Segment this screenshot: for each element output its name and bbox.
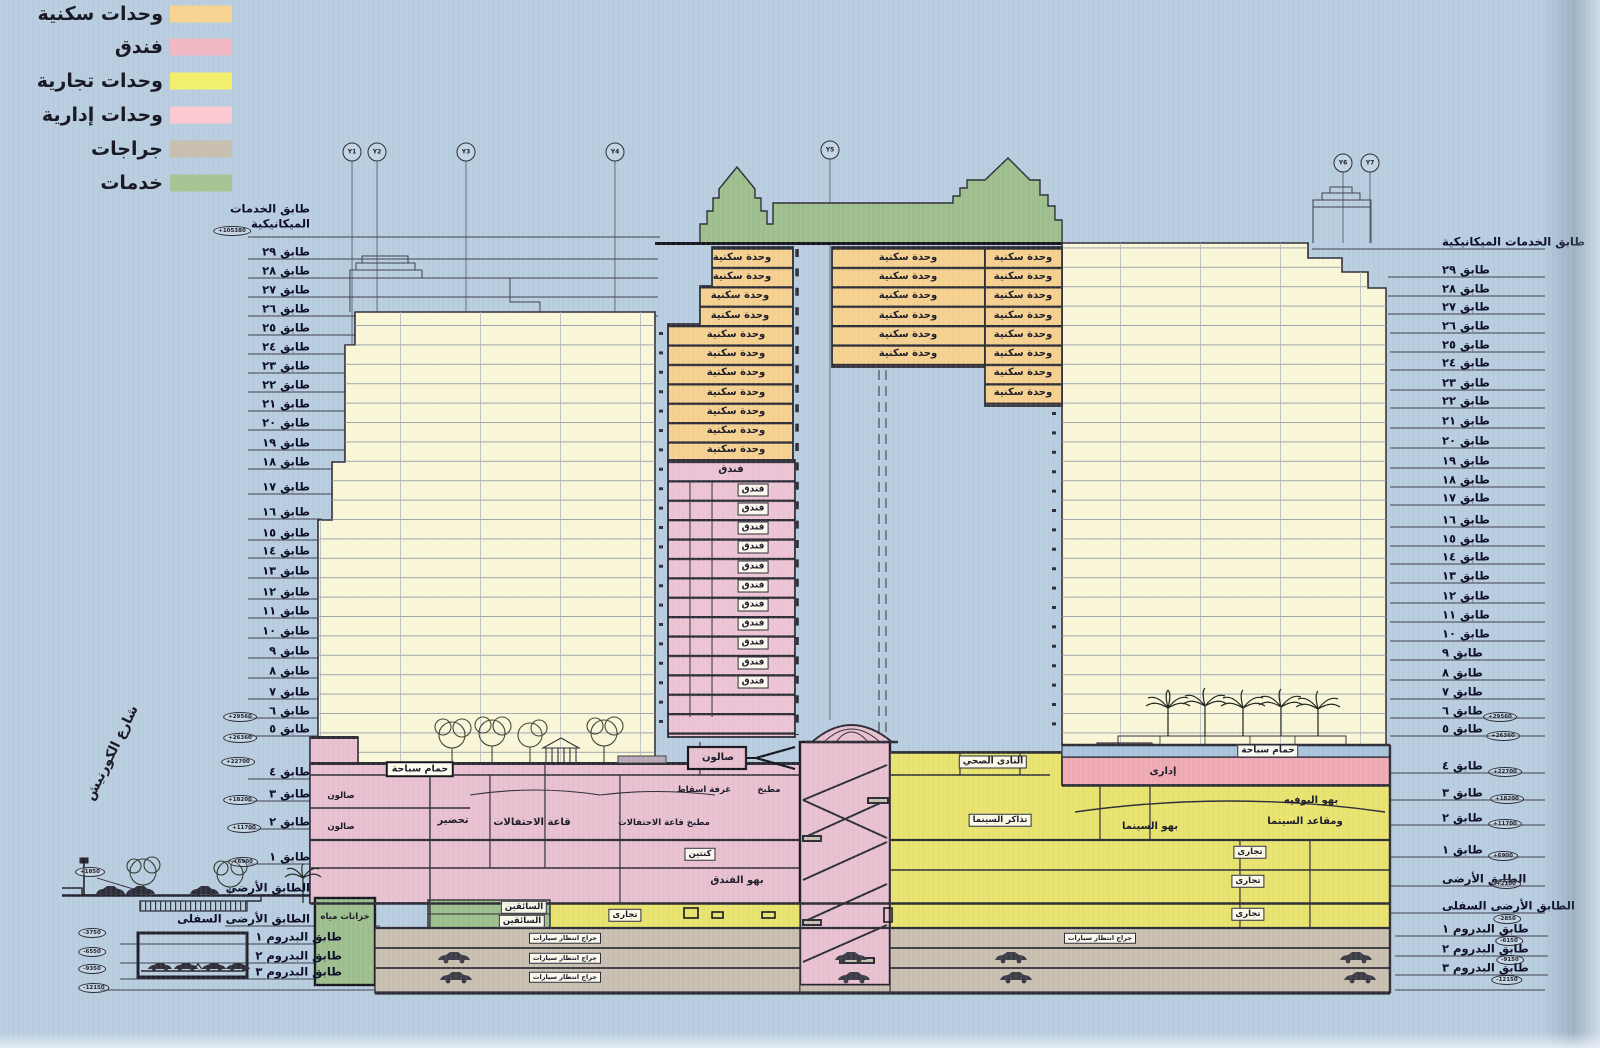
elevation-right-ground: +2100 (1491, 879, 1521, 889)
legend-label-commercial: وحدات تجارية (37, 70, 163, 92)
floor-label-right-22: طابق ٢٢ (1442, 395, 1490, 407)
floor-label-right-lower-ground: الطابق الأرضى السفلى (1442, 900, 1575, 912)
room-label-hotel: فندق (738, 484, 769, 497)
floor-label-left-2: طابق ٢ (269, 816, 310, 828)
room-label-residential: وحدة سكنية (879, 253, 937, 263)
floor-label-right-10: طابق ١٠ (1442, 628, 1490, 640)
legend-swatch-hotel (170, 39, 232, 56)
legend-swatch-residential (170, 6, 232, 23)
room-label-hotel: فندق (738, 657, 769, 670)
grid-marker-y1: Y1 (343, 143, 362, 162)
room-label-residential: وحدة سكنية (711, 311, 769, 321)
services-crown (700, 158, 1062, 243)
room-label-residential: وحدة سكنية (994, 388, 1052, 398)
room-label-commercial: تجارى (608, 909, 641, 922)
grid-marker-y4: Y4 (606, 143, 625, 162)
elevation-right-f4: +22700 (1488, 767, 1522, 777)
floor-label-left-23: طابق ٢٣ (262, 360, 310, 372)
floor-label-right-20: طابق ٢٠ (1442, 435, 1490, 447)
floor-label-left-14: طابق ١٤ (262, 545, 310, 557)
floor-label-left-b2: طابق البدروم ٢ (255, 950, 342, 962)
room-label-residential: وحدة سكنية (707, 445, 765, 455)
floor-label-right-2: طابق ٢ (1442, 812, 1483, 824)
room-label-ballroom-kitchen: مطبخ قاعة الاحتفالات (618, 819, 710, 828)
floor-label-right-12: طابق ١٢ (1442, 590, 1490, 602)
room-label-ballroom: قاعة الاحتفالات (493, 818, 570, 828)
elevation-right-f2: +11700 (1488, 819, 1522, 829)
room-label-parking: جراج انتظار سيارات (529, 933, 601, 944)
floor-label-left-6: طابق ٦ (269, 705, 310, 717)
room-label-hotel-lobby: بهو الفندق (710, 876, 763, 886)
room-label-residential: وحدة سكنية (707, 426, 765, 436)
room-label-residential: وحدة سكنية (994, 311, 1052, 321)
grid-marker-y4-label: Y4 (611, 149, 620, 156)
room-label-residential: وحدة سكنية (707, 349, 765, 359)
grid-marker-y7: Y7 (1361, 154, 1380, 173)
elevation-right-b1: -6150 (1495, 936, 1523, 946)
architectural-section-drawing: وحدات سكنية فندق وحدات تجارية وحدات إدار… (0, 0, 1600, 1048)
room-label-residential: وحدة سكنية (994, 291, 1052, 301)
floor-label-right-14: طابق ١٤ (1442, 551, 1490, 563)
room-label-hotel: فندق (718, 465, 743, 475)
floor-label-right-27: طابق ٢٧ (1442, 301, 1490, 313)
elevation-left-f1: +6900 (228, 857, 258, 867)
grid-marker-y2: Y2 (368, 143, 387, 162)
grid-marker-y1-label: Y1 (348, 149, 357, 156)
room-label-canteen: كنتين (684, 848, 715, 861)
floor-label-left-28: طابق ٢٨ (262, 265, 310, 277)
elevation-right-lower: -2850 (1493, 914, 1521, 924)
floor-label-left-b3: طابق البدروم ٣ (255, 966, 342, 978)
floor-label-right-28: طابق ٢٨ (1442, 283, 1490, 295)
atrium-strip (800, 742, 890, 985)
legend-swatch-commercial (170, 73, 232, 90)
room-label-salon: صالون (327, 823, 354, 832)
room-label-hotel: فندق (738, 503, 769, 516)
grid-marker-y2-label: Y2 (373, 149, 382, 156)
room-label-residential: وحدة سكنية (713, 253, 771, 263)
room-label-water-tanks: خزانات مياه (320, 913, 369, 922)
floor-label-right-9: طابق ٩ (1442, 647, 1483, 659)
room-label-residential: وحدة سكنية (879, 291, 937, 301)
floor-label-right-mech: طابق الخدمات الميكانيكية (1442, 236, 1585, 248)
floor-label-left-8: طابق ٨ (269, 665, 310, 677)
floor-label-right-23: طابق ٢٣ (1442, 377, 1490, 389)
room-label-hotel: فندق (738, 522, 769, 535)
elevation-right-f5: +26360 (1486, 731, 1520, 741)
floor-label-left-17: طابق ١٧ (262, 481, 310, 493)
room-label-hotel: فندق (738, 580, 769, 593)
room-label-commercial: تجارى (1231, 875, 1264, 888)
floor-label-left-13: طابق ١٣ (262, 565, 310, 577)
floor-label-left-16: طابق ١٦ (262, 506, 310, 518)
elevation-right-b2: -9150 (1496, 955, 1524, 965)
room-label-residential: وحدة سكنية (707, 368, 765, 378)
floor-label-left-29: طابق ٢٩ (262, 246, 310, 258)
room-label-parking: جراج انتظار سيارات (529, 953, 601, 964)
floor-label-right-1: طابق ١ (1442, 844, 1483, 856)
floor-label-left-lower-ground: الطابق الأرضى السفلى (177, 913, 310, 925)
room-label-residential: وحدة سكنية (879, 349, 937, 359)
room-label-residential: وحدة سكنية (879, 311, 937, 321)
floor-label-right-16: طابق ١٦ (1442, 514, 1490, 526)
room-label-kitchen: مطبخ (757, 786, 780, 795)
elevation-ground-left: +1850 (75, 867, 105, 877)
floor-label-right-29: طابق ٢٩ (1442, 264, 1490, 276)
floor-label-right-b1: طابق البدروم ١ (1442, 923, 1529, 935)
room-label-hotel: فندق (738, 637, 769, 650)
room-label-parking: جراج انتظار سيارات (529, 972, 601, 983)
floor-label-left-mech-2: الميكانيكية (251, 218, 310, 230)
room-label-hotel: فندق (738, 541, 769, 554)
elevation-right-f6: +29560 (1483, 712, 1517, 722)
room-label-health-club: النادى الصحي (959, 756, 1027, 769)
room-label-prep: تحضير (437, 816, 468, 826)
hotel-column (668, 460, 795, 737)
left-wing-block (318, 256, 655, 763)
floor-label-right-13: طابق ١٣ (1442, 570, 1490, 582)
room-label-residential: وحدة سكنية (994, 272, 1052, 282)
floor-label-right-24: طابق ٢٤ (1442, 357, 1490, 369)
floor-label-left-25: طابق ٢٥ (262, 322, 310, 334)
grid-marker-y6-label: Y6 (1339, 160, 1348, 167)
elevation-left-b1: -3750 (78, 928, 106, 938)
floor-label-left-20: طابق ٢٠ (262, 417, 310, 429)
grid-marker-y5-label: Y5 (826, 147, 835, 154)
dome (805, 725, 898, 742)
admin-band (1062, 757, 1390, 785)
room-label-drivers: السائقين (499, 915, 545, 928)
elevation-left-f4: +22700 (221, 757, 255, 767)
room-label-residential: وحدة سكنية (713, 272, 771, 282)
room-label-buffet-lobby: بهو البوفيه (1284, 796, 1338, 806)
floor-label-right-21: طابق ٢١ (1442, 415, 1490, 427)
room-label-cinema-seats: ومقاعد السينما (1267, 817, 1342, 827)
floor-label-right-5: طابق ٥ (1442, 723, 1483, 735)
floor-label-right-15: طابق ١٥ (1442, 533, 1490, 545)
floor-label-right-17: طابق ١٧ (1442, 492, 1490, 504)
floor-label-left-27: طابق ٢٧ (262, 284, 310, 296)
legend-swatch-services (170, 175, 232, 192)
room-label-residential: وحدة سكنية (994, 349, 1052, 359)
room-label-hotel: فندق (738, 599, 769, 612)
elevation-left-b3: -9350 (78, 964, 106, 974)
floor-label-right-8: طابق ٨ (1442, 667, 1483, 679)
legend-label-hotel: فندق (115, 36, 163, 58)
legend-swatch-garages (170, 141, 232, 158)
floor-label-left-22: طابق ٢٢ (262, 379, 310, 391)
floor-label-right-6: طابق ٦ (1442, 705, 1483, 717)
floor-label-left-ground: الطابق الأرضى (226, 882, 310, 894)
room-label-residential: وحدة سكنية (707, 388, 765, 398)
floor-label-left-18: طابق ١٨ (262, 456, 310, 468)
elevation-mech: +105380 (213, 226, 251, 236)
room-label-admin: إدارى (1150, 767, 1177, 777)
floor-label-left-21: طابق ٢١ (262, 398, 310, 410)
room-label-salon: صالون (702, 753, 734, 763)
floor-label-right-25: طابق ٢٥ (1442, 339, 1490, 351)
floor-label-left-9: طابق ٩ (269, 645, 310, 657)
room-label-pool-right: حمام سباحة (1237, 745, 1298, 758)
room-label-hotel: فندق (738, 561, 769, 574)
elevation-right-f1: +6900 (1488, 851, 1518, 861)
room-label-commercial: تجارى (1233, 846, 1266, 859)
room-label-residential: وحدة سكنية (707, 407, 765, 417)
elevation-left-b2: -6550 (78, 947, 106, 957)
grid-marker-y3: Y3 (457, 143, 476, 162)
right-wing-block (1062, 187, 1386, 745)
floor-label-right-7: طابق ٧ (1442, 686, 1483, 698)
legend-label-admin: وحدات إدارية (42, 104, 163, 126)
room-label-residential: وحدة سكنية (994, 253, 1052, 263)
room-label-residential: وحدة سكنية (879, 330, 937, 340)
room-label-parking: جراج انتظار سيارات (1064, 933, 1136, 944)
legend-label-services: خدمات (100, 172, 163, 194)
elevation-left-f2: +11700 (227, 823, 261, 833)
room-label-commercial: تجارى (1231, 908, 1264, 921)
room-label-hotel: فندق (738, 676, 769, 689)
legend-label-residential: وحدات سكنية (38, 3, 163, 25)
floor-label-left-15: طابق ١٥ (262, 527, 310, 539)
pool-band (1062, 745, 1390, 757)
floor-label-left-7: طابق ٧ (269, 686, 310, 698)
elevation-left-f3: +18200 (223, 795, 257, 805)
floor-label-right-4: طابق ٤ (1442, 760, 1483, 772)
floor-label-right-18: طابق ١٨ (1442, 474, 1490, 486)
floor-label-right-19: طابق ١٩ (1442, 455, 1490, 467)
grid-marker-y7-label: Y7 (1366, 160, 1375, 167)
room-label-drivers: السائقين (501, 901, 547, 914)
grid-marker-y6: Y6 (1334, 154, 1353, 173)
floor-label-left-1: طابق ١ (269, 851, 310, 863)
floor-label-left-24: طابق ٢٤ (262, 341, 310, 353)
grid-marker-y5: Y5 (821, 141, 840, 160)
grid-marker-y3-label: Y3 (462, 149, 471, 156)
room-label-cinema-lobby: بهو السينما (1122, 822, 1178, 832)
elevation-right-f3: +18200 (1490, 794, 1524, 804)
room-label-residential: وحدة سكنية (994, 368, 1052, 378)
legend-swatch-admin (170, 107, 232, 124)
floor-label-left-4: طابق ٤ (269, 766, 310, 778)
room-label-hotel: فندق (738, 618, 769, 631)
floor-label-left-19: طابق ١٩ (262, 437, 310, 449)
floor-label-left-11: طابق ١١ (262, 605, 310, 617)
room-label-projection: غرفة اسقاط (677, 786, 731, 795)
garage-right (890, 928, 1390, 993)
floor-label-right-11: طابق ١١ (1442, 609, 1490, 621)
room-label-residential: وحدة سكنية (994, 330, 1052, 340)
legend-label-garages: جراجات (91, 138, 163, 160)
floor-label-left-b1: طابق البدروم ١ (255, 931, 342, 943)
floor-label-left-12: طابق ١٢ (262, 586, 310, 598)
elevation-left-f6: +29560 (223, 712, 257, 722)
room-label-pool-left: حمام سباحة (386, 761, 454, 777)
room-label-residential: وحدة سكنية (707, 330, 765, 340)
elevation-left-f5: +26360 (223, 733, 257, 743)
floor-label-right-26: طابق ٢٦ (1442, 320, 1490, 332)
floor-label-left-10: طابق ١٠ (262, 625, 310, 637)
floor-label-left-26: طابق ٢٦ (262, 303, 310, 315)
room-label-salon: صالون (327, 792, 354, 801)
floor-label-left-mech-1: طابق الخدمات (230, 203, 310, 215)
room-label-residential: وحدة سكنية (879, 272, 937, 282)
floor-label-left-5: طابق ٥ (269, 723, 310, 735)
floor-label-right-3: طابق ٣ (1442, 787, 1483, 799)
room-label-cinema-tickets: تذاكر السينما (969, 814, 1032, 827)
room-label-residential: وحدة سكنية (711, 291, 769, 301)
floor-label-left-3: طابق ٣ (269, 788, 310, 800)
